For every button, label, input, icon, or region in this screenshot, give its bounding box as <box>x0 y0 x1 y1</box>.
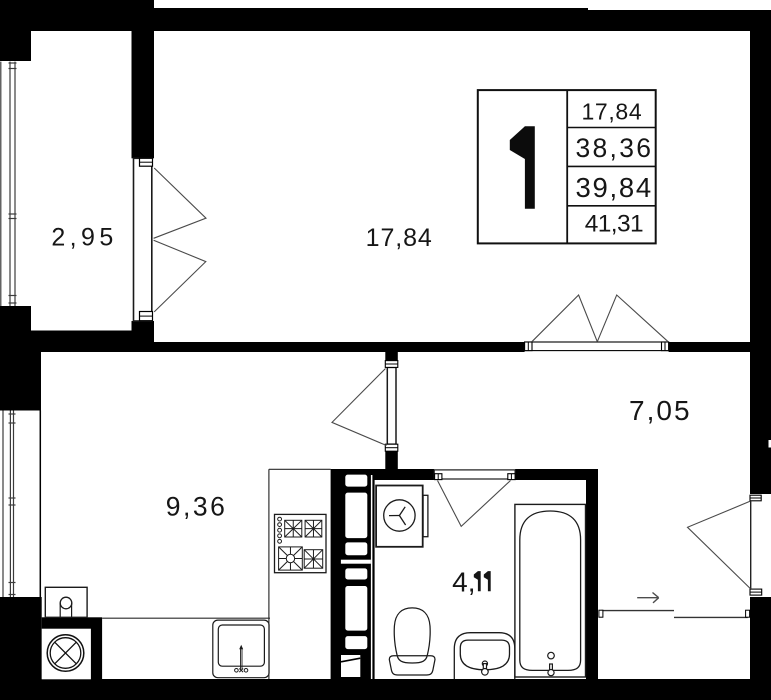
svg-text:39,84: 39,84 <box>576 172 653 203</box>
svg-text:4,: 4, <box>452 566 475 597</box>
svg-text:17,84: 17,84 <box>366 224 433 252</box>
svg-text:7,05: 7,05 <box>629 395 692 426</box>
svg-text:41,31: 41,31 <box>585 210 643 237</box>
svg-text:17,84: 17,84 <box>581 98 642 124</box>
svg-text:2,95: 2,95 <box>51 224 117 252</box>
svg-text:38,36: 38,36 <box>575 133 653 163</box>
svg-text:9,36: 9,36 <box>166 491 228 521</box>
